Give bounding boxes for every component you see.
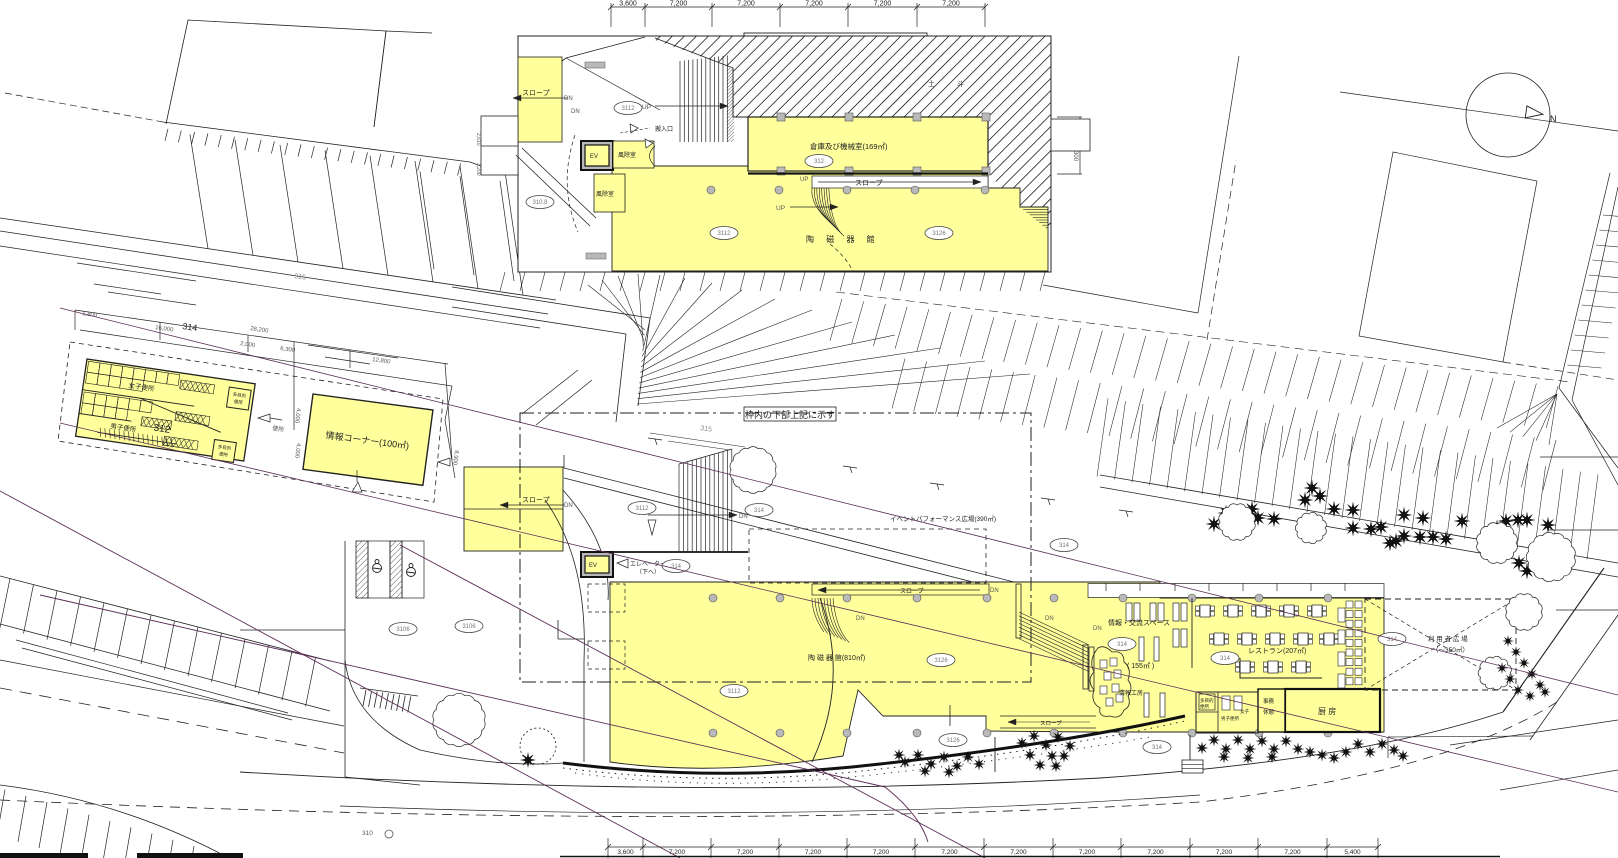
svg-text:DN: DN (739, 514, 748, 520)
svg-text:情報工房: 情報工房 (1119, 689, 1143, 697)
svg-text:搬入口: 搬入口 (655, 125, 673, 133)
svg-text:310.8: 310.8 (532, 200, 548, 206)
svg-text:7,200: 7,200 (1147, 849, 1164, 856)
svg-text:7,200: 7,200 (670, 1, 688, 8)
svg-text:DN: DN (990, 588, 999, 594)
svg-text:314: 314 (754, 508, 765, 514)
svg-text:スロープ: スロープ (522, 89, 550, 97)
svg-text:DN: DN (856, 616, 865, 622)
svg-text:310: 310 (362, 830, 373, 837)
svg-text:3106: 3106 (396, 627, 410, 633)
svg-text:エレベーター: エレベーター (630, 560, 666, 568)
svg-text:7,200: 7,200 (1216, 849, 1233, 856)
svg-text:多目的: 多目的 (1200, 697, 1214, 704)
svg-text:陶 磁 器 館(810㎡): 陶 磁 器 館(810㎡) (808, 653, 865, 662)
svg-text:314: 314 (1152, 745, 1163, 751)
svg-text:3112: 3112 (728, 689, 742, 695)
svg-text:3126: 3126 (932, 231, 946, 237)
svg-text:3,200: 3,200 (475, 163, 481, 176)
svg-text:3112: 3112 (622, 106, 636, 112)
svg-text:UP: UP (642, 104, 651, 111)
svg-text:312: 312 (814, 159, 825, 165)
svg-text:314: 314 (182, 321, 198, 333)
svg-text:( 155㎡ ): ( 155㎡ ) (1127, 662, 1154, 670)
svg-text:3,600: 3,600 (617, 849, 634, 856)
svg-text:7,200: 7,200 (873, 849, 890, 856)
svg-text:EV: EV (589, 563, 597, 569)
svg-text:EV: EV (590, 154, 598, 160)
svg-text:3106: 3106 (462, 624, 476, 630)
svg-text:3112: 3112 (718, 231, 732, 237)
svg-text:7,200: 7,200 (942, 1, 960, 8)
svg-text:7,200: 7,200 (669, 849, 686, 856)
svg-text:事務: 事務 (1263, 697, 1275, 705)
svg-text:（下へ）: （下へ） (636, 569, 660, 576)
svg-text:7,200: 7,200 (1284, 849, 1301, 856)
svg-text:（〜350㎡）: （〜350㎡） (1432, 645, 1469, 654)
svg-text:スロープ: スロープ (855, 179, 883, 187)
svg-text:7,200: 7,200 (941, 849, 958, 856)
svg-text:7,200: 7,200 (737, 1, 755, 8)
svg-text:女子: 女子 (1240, 708, 1249, 715)
svg-text:倉庫及び機械室(169㎡): 倉庫及び機械室(169㎡) (810, 141, 888, 151)
svg-text:UP: UP (800, 177, 808, 183)
svg-text:7,200: 7,200 (805, 1, 823, 8)
svg-text:レストラン(207㎡): レストラン(207㎡) (1248, 647, 1306, 655)
svg-text:UP: UP (776, 205, 785, 212)
svg-text:3112: 3112 (636, 506, 650, 512)
svg-text:陶 磁 器 館: 陶 磁 器 館 (806, 234, 880, 244)
svg-text:DN: DN (1093, 626, 1102, 632)
svg-text:7,200: 7,200 (1010, 849, 1027, 856)
svg-text:DN: DN (564, 96, 573, 102)
svg-text:3126: 3126 (946, 738, 960, 744)
svg-text:利 用 者 広 場: 利 用 者 広 場 (1428, 634, 1468, 643)
svg-text:3126: 3126 (934, 658, 948, 664)
svg-text:7,200: 7,200 (1079, 849, 1096, 856)
svg-text:風除室: 風除室 (596, 190, 614, 198)
svg-text:DN: DN (564, 503, 573, 509)
svg-text:314: 314 (1220, 656, 1231, 662)
svg-text:便所: 便所 (1200, 703, 1209, 710)
svg-text:7,200: 7,200 (737, 849, 754, 856)
svg-text:枠内の下部上記に示す: 枠内の下部上記に示す (745, 409, 835, 420)
svg-text:風除室: 風除室 (618, 151, 636, 159)
svg-text:スロープ: スロープ (1040, 720, 1062, 727)
svg-text:土 斗: 土 斗 (928, 79, 974, 88)
svg-text:厨 房: 厨 房 (1318, 706, 1336, 716)
svg-text:314: 314 (1117, 642, 1128, 648)
svg-text:5,400: 5,400 (1344, 849, 1361, 856)
svg-text:N: N (1550, 114, 1557, 124)
svg-text:DN: DN (1045, 616, 1054, 622)
svg-text:2,610: 2,610 (475, 133, 481, 146)
svg-text:男子便所: 男子便所 (1221, 715, 1239, 722)
svg-text:スロープ: スロープ (900, 588, 924, 595)
svg-text:情報・交流スペース: 情報・交流スペース (1108, 618, 1170, 627)
svg-text:DN: DN (571, 109, 580, 115)
svg-text:7,200: 7,200 (874, 1, 892, 8)
svg-text:7,200: 7,200 (805, 849, 822, 856)
svg-text:314: 314 (1059, 543, 1070, 549)
svg-text:3,600: 3,600 (619, 1, 637, 8)
